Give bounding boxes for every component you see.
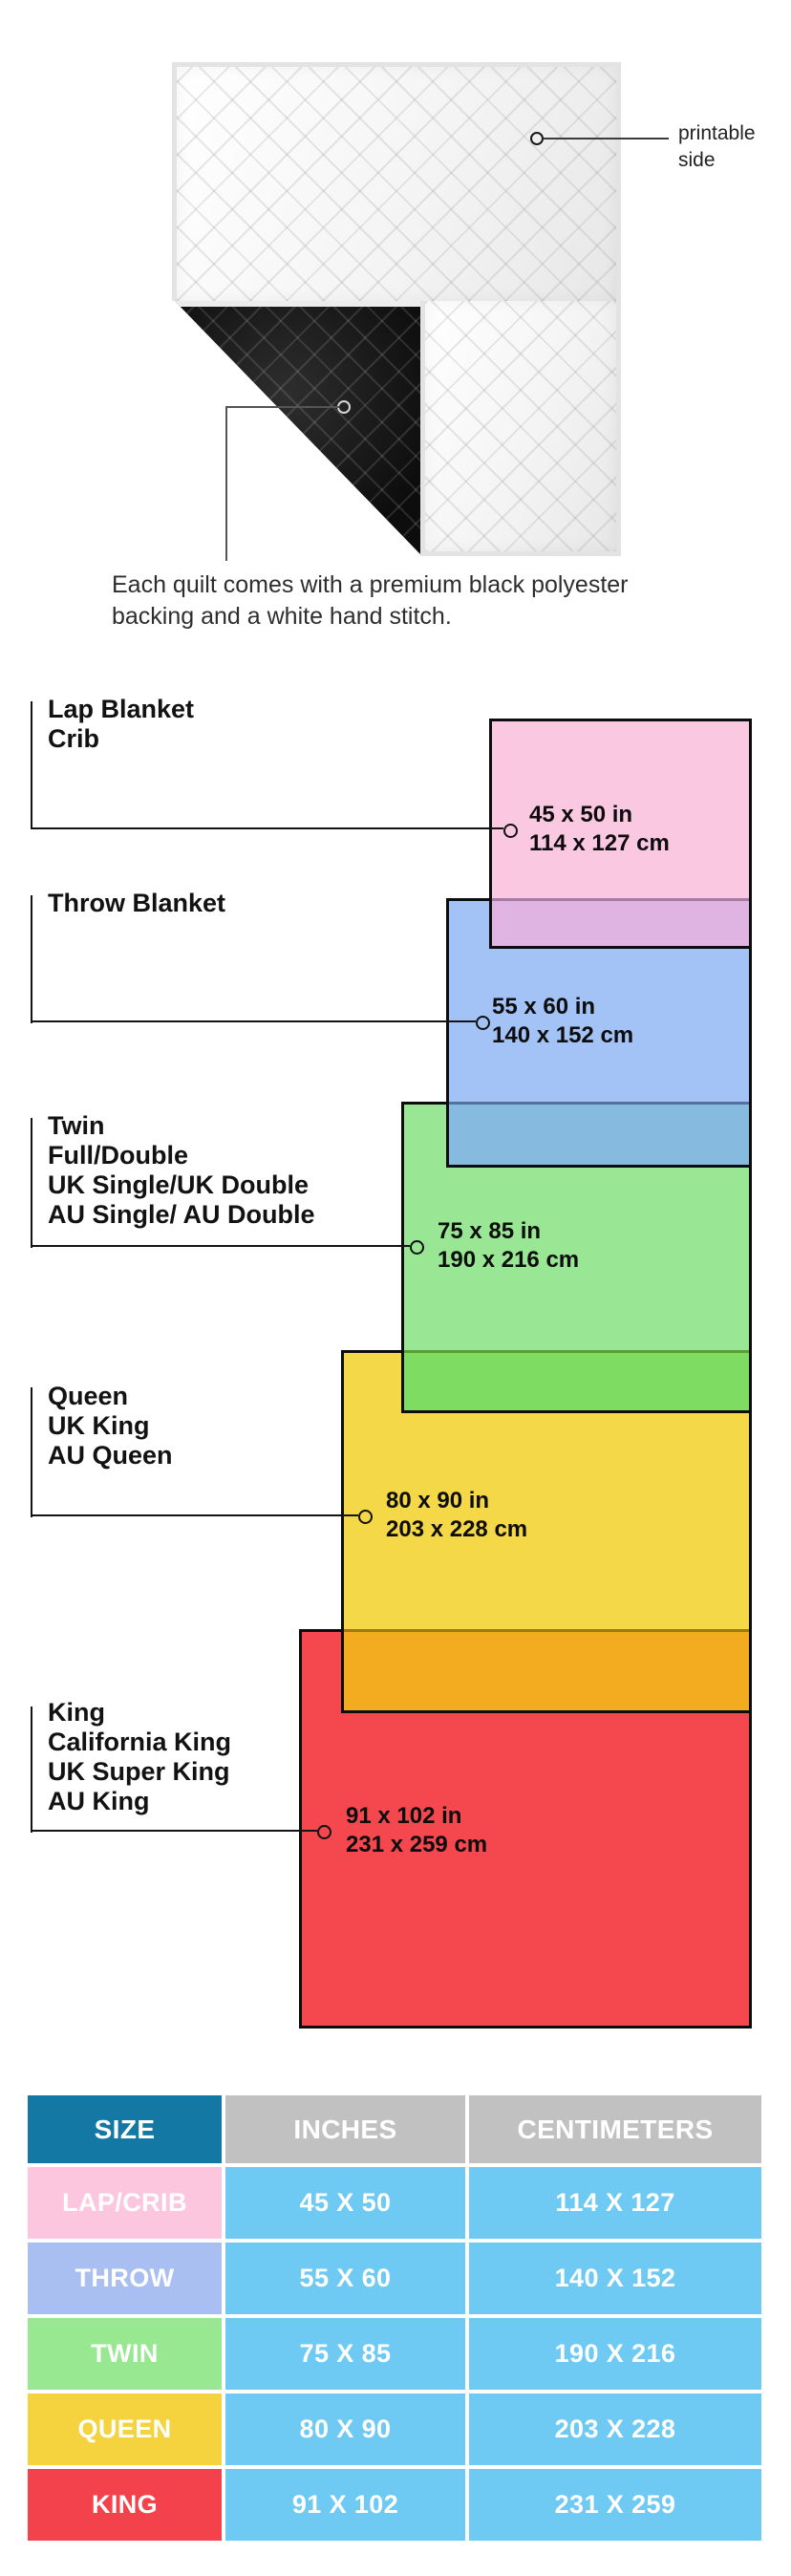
size-label-twin: Twin Full/Double UK Single/UK Double AU … [48, 1111, 315, 1230]
table-cell-centimeters: 140 X 152 [469, 2243, 761, 2314]
table-cell-inches: 80 X 90 [225, 2394, 465, 2465]
size-label-line: Full/Double [48, 1141, 315, 1170]
table-header-centimeters: CENTIMETERS [469, 2095, 761, 2163]
printable-side-marker-icon [530, 132, 544, 145]
dimension-text-queen: 80 x 90 in 203 x 228 cm [386, 1487, 527, 1544]
overlap-band-throw-twin [449, 1102, 749, 1165]
dimension-inches: 91 x 102 in [346, 1802, 487, 1831]
backing-marker-icon [337, 400, 351, 414]
size-label-line: UK Super King [48, 1757, 231, 1787]
printable-side-label: printable side [678, 120, 756, 174]
table-row-label-queen: QUEEN [28, 2394, 222, 2465]
size-label-line: California King [48, 1728, 231, 1757]
backing-leader-line-vertical [225, 406, 227, 561]
product-size-infographic: printable side Each quilt comes with a p… [0, 0, 791, 2576]
dimension-centimeters: 140 x 152 cm [492, 1021, 633, 1050]
dimension-inches: 45 x 50 in [529, 801, 670, 829]
dimension-text-twin: 75 x 85 in 190 x 216 cm [438, 1217, 579, 1275]
leader-tick-throw [31, 895, 32, 1023]
leader-tick-twin [31, 1118, 32, 1248]
printable-side-label-line2: side [678, 147, 756, 174]
backing-note-line2: backing and a white hand stitch. [112, 601, 629, 633]
size-table: SIZE INCHES CENTIMETERS LAP/CRIB 45 X 50… [28, 2095, 761, 2541]
table-row-label-throw: THROW [28, 2243, 222, 2314]
leader-dot-throw-icon [476, 1016, 490, 1030]
dimension-inches: 75 x 85 in [438, 1217, 579, 1246]
table-cell-inches: 55 X 60 [225, 2243, 465, 2314]
dimension-centimeters: 231 x 259 cm [346, 1831, 487, 1859]
quilt-photo-black-backing-fold [175, 301, 420, 554]
table-header-size: SIZE [28, 2095, 222, 2163]
leader-dot-king-icon [317, 1825, 331, 1839]
dimension-inches: 80 x 90 in [386, 1487, 527, 1515]
backing-note-line1: Each quilt comes with a premium black po… [112, 569, 629, 601]
overlap-band-twin-queen [404, 1350, 749, 1410]
dimension-text-throw: 55 x 60 in 140 x 152 cm [492, 993, 633, 1050]
size-label-line: Twin [48, 1111, 315, 1141]
leader-dot-twin-icon [410, 1240, 424, 1255]
backing-leader-line-horizontal [226, 406, 339, 408]
table-header-inches: INCHES [225, 2095, 465, 2163]
size-label-line: AU King [48, 1787, 231, 1816]
quilt-photo-front [172, 62, 621, 301]
leader-line-queen [31, 1514, 358, 1516]
table-cell-centimeters: 231 X 259 [469, 2469, 761, 2541]
dimension-centimeters: 203 x 228 cm [386, 1515, 527, 1544]
leader-line-lap [31, 827, 503, 829]
leader-line-throw [31, 1020, 476, 1022]
table-row-label-twin: TWIN [28, 2318, 222, 2390]
size-label-line: Queen [48, 1382, 173, 1411]
table-cell-centimeters: 190 X 216 [469, 2318, 761, 2390]
table-cell-centimeters: 203 X 228 [469, 2394, 761, 2465]
size-label-line: King [48, 1698, 231, 1728]
overlap-band-lap-throw [492, 898, 749, 946]
printable-side-label-line1: printable [678, 120, 756, 147]
leader-tick-queen [31, 1387, 32, 1517]
size-label-throw: Throw Blanket [48, 889, 225, 918]
leader-tick-lap [31, 701, 32, 829]
size-label-queen: Queen UK King AU Queen [48, 1382, 173, 1470]
backing-note: Each quilt comes with a premium black po… [112, 569, 629, 633]
size-label-line: AU Single/ AU Double [48, 1200, 315, 1230]
table-cell-inches: 91 X 102 [225, 2469, 465, 2541]
size-label-line: UK King [48, 1411, 173, 1441]
dimension-centimeters: 190 x 216 cm [438, 1246, 579, 1275]
quilt-photo-front-column [420, 301, 621, 556]
size-label-lap-crib: Lap Blanket Crib [48, 695, 194, 754]
size-label-line: Crib [48, 724, 194, 754]
table-row-label-lap-crib: LAP/CRIB [28, 2167, 222, 2239]
leader-dot-lap-icon [503, 824, 518, 838]
dimension-inches: 55 x 60 in [492, 993, 633, 1021]
printable-side-leader-line [544, 138, 669, 140]
dimension-centimeters: 114 x 127 cm [529, 829, 670, 858]
dimension-text-lap-crib: 45 x 50 in 114 x 127 cm [529, 801, 670, 858]
table-cell-inches: 45 X 50 [225, 2167, 465, 2239]
table-cell-centimeters: 114 X 127 [469, 2167, 761, 2239]
size-label-line: AU Queen [48, 1441, 173, 1470]
size-label-line: Lap Blanket [48, 695, 194, 724]
dimension-text-king: 91 x 102 in 231 x 259 cm [346, 1802, 487, 1859]
leader-line-king [31, 1830, 317, 1832]
size-label-line: Throw Blanket [48, 889, 225, 918]
leader-dot-queen-icon [358, 1510, 373, 1524]
leader-tick-king [31, 1707, 32, 1833]
table-row-label-king: KING [28, 2469, 222, 2541]
size-label-line: UK Single/UK Double [48, 1170, 315, 1200]
overlap-band-queen-king [344, 1629, 749, 1710]
leader-line-twin [31, 1245, 410, 1247]
size-label-king: King California King UK Super King AU Ki… [48, 1698, 231, 1816]
table-cell-inches: 75 X 85 [225, 2318, 465, 2390]
